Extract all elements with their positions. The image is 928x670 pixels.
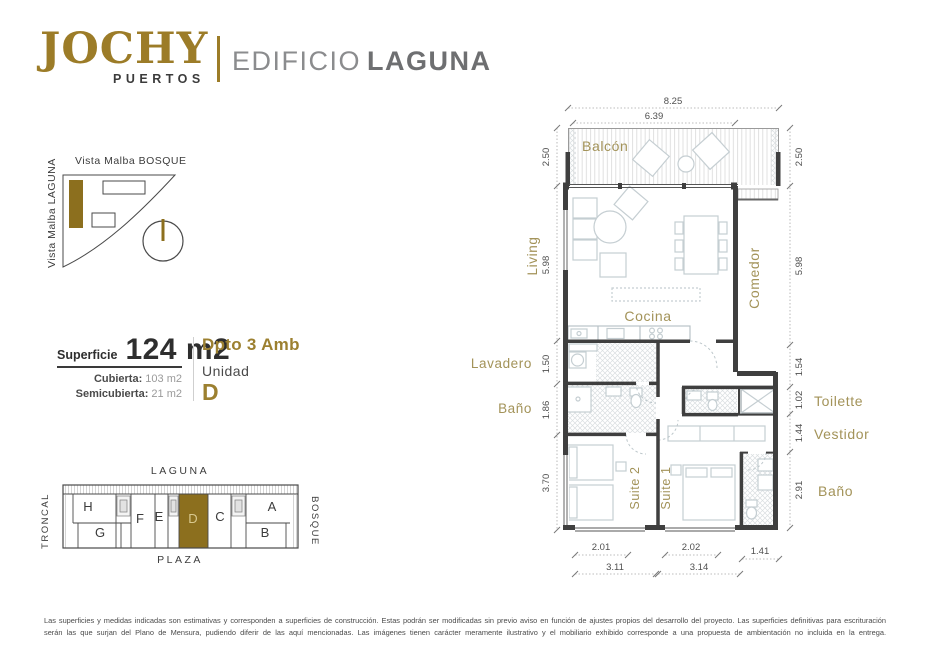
unit-label-g: G <box>95 525 105 540</box>
building-prefix: EDIFICIO <box>232 46 361 76</box>
disclaimer: Las superficies y medidas indicadas son … <box>44 615 886 639</box>
dim-left-1: 5.98 <box>541 256 552 275</box>
unit-label-a: A <box>268 499 277 514</box>
dim-bottom-1: 2.02 <box>682 542 701 553</box>
building-title: EDIFICIOLAGUNA <box>232 40 492 82</box>
unidad-value: D <box>202 379 219 406</box>
keyplan-right-strip <box>293 495 298 548</box>
dim-right-0: 2.50 <box>794 148 805 167</box>
semicubierta-value: 21 m2 <box>151 388 182 400</box>
dim-bottom-2: 1.41 <box>751 546 770 557</box>
unidad-label: Unidad <box>202 363 249 379</box>
unit-floorplan: 8.25 6.39 2.50 5.98 1.50 1.86 3.70 2.50 … <box>450 88 928 613</box>
dim-top-total: 8.25 <box>664 96 683 107</box>
building-keyplan: LAGUNA PLAZA TRONCAL BOSQUE H F E D C A … <box>28 458 328 570</box>
room-label-toilette: Toilette <box>814 393 863 409</box>
room-label-lavadero: Lavadero <box>471 356 532 371</box>
dim-right-3: 1.02 <box>794 391 805 410</box>
room-label-living: Living <box>525 237 540 276</box>
cubierta-value: 103 m2 <box>145 373 182 385</box>
brand-logo: JOCHY <box>40 28 208 71</box>
room-labels: Balcón Living Comedor Cocina Lavadero Ba… <box>471 138 870 510</box>
summary-divider <box>193 337 194 401</box>
surface-breakdown: Cubierta: 103 m2 Semicubierta: 21 m2 <box>22 372 182 402</box>
semicubierta-line: Semicubierta: 21 m2 <box>22 387 182 402</box>
room-label-suite2: Suite 2 <box>628 466 642 509</box>
semicubierta-label: Semicubierta: <box>76 388 149 400</box>
room-label-balcon: Balcón <box>582 138 628 154</box>
room-label-vestidor: Vestidor <box>814 426 869 442</box>
dim-left-2: 1.50 <box>541 355 552 374</box>
header-divider <box>217 36 220 82</box>
room-label-bano-left: Baño <box>498 401 532 416</box>
dim-left-4: 3.70 <box>541 474 552 493</box>
dim-right-4: 1.44 <box>794 424 805 443</box>
site-block-2 <box>92 213 115 227</box>
dim-right-2: 1.54 <box>794 358 805 377</box>
unit-label-e: E <box>155 509 164 524</box>
keyplan-left-strip <box>63 495 68 548</box>
north-compass-icon <box>143 219 183 261</box>
unit-label-c: C <box>215 509 224 524</box>
brand-sub-label: PUERTOS <box>113 72 205 86</box>
cubierta-label: Cubierta: <box>94 373 142 385</box>
floorplan-brochure: JOCHY PUERTOS EDIFICIOLAGUNA Vista Malba… <box>0 0 928 670</box>
disclaimer-line-1: Las superficies y medidas indicadas son … <box>44 615 886 627</box>
dim-left-0: 2.50 <box>541 148 552 167</box>
keyplan-street-right: BOSQUE <box>309 496 320 546</box>
room-label-cocina: Cocina <box>624 308 671 324</box>
unit-marker <box>69 180 83 228</box>
side-slab <box>738 189 778 200</box>
keyplan-street-top: LAGUNA <box>151 465 209 477</box>
keyplan-street-bottom: PLAZA <box>157 554 203 566</box>
superficie-label: Superficie <box>57 348 117 362</box>
summary-rule <box>57 366 182 368</box>
orientation-diagram: Vista Malba BOSQUE Vista Malba LAGUNA <box>35 146 200 278</box>
room-label-bano-right: Baño <box>818 483 853 499</box>
unit-label-d: D <box>188 511 197 526</box>
dim-bottom-0: 2.01 <box>592 542 611 553</box>
unit-label-h: H <box>83 499 92 514</box>
dim-bottom-total-1: 3.14 <box>690 562 709 573</box>
room-label-comedor: Comedor <box>746 247 762 309</box>
room-label-suite1: Suite 1 <box>659 466 673 509</box>
orientation-side-label: Vista Malba LAGUNA <box>46 158 58 268</box>
dim-left-3: 1.86 <box>541 401 552 420</box>
keyplan-street-left: TRONCAL <box>40 493 51 549</box>
dim-right-1: 5.98 <box>794 257 805 276</box>
keyplan-balcony-strip <box>63 485 298 494</box>
cubierta-line: Cubierta: 103 m2 <box>22 372 182 387</box>
dim-right-5: 2.91 <box>794 481 805 500</box>
dim-bottom-total-0: 3.11 <box>606 562 624 573</box>
disclaimer-line-2: serán las que surjan del Plano de Mensur… <box>44 627 886 639</box>
building-name: LAGUNA <box>367 46 492 76</box>
unit-label-b: B <box>261 525 270 540</box>
orientation-top-label: Vista Malba BOSQUE <box>75 155 187 167</box>
dim-top-inner: 6.39 <box>645 111 664 122</box>
unit-label-f: F <box>136 511 144 526</box>
site-block-1 <box>103 181 145 194</box>
dpto-label: Dpto 3 Amb <box>202 335 300 355</box>
